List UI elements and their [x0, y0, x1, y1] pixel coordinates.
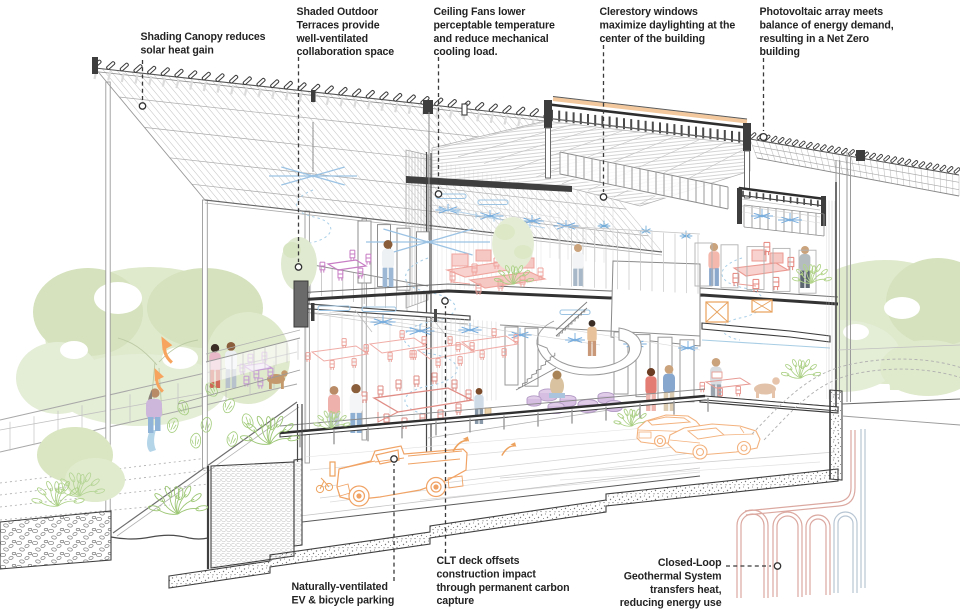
svg-text:building: building — [760, 46, 800, 58]
svg-text:Shading Canopy reduces: Shading Canopy reduces — [141, 31, 266, 43]
svg-text:EV & bicycle parking: EV & bicycle parking — [292, 595, 395, 607]
svg-text:Photovoltaic array meets: Photovoltaic array meets — [760, 6, 884, 18]
svg-text:well-ventilated: well-ventilated — [296, 33, 369, 45]
svg-text:reducing energy use: reducing energy use — [620, 597, 722, 609]
svg-text:Geothermal System: Geothermal System — [624, 571, 722, 583]
svg-text:center of the building: center of the building — [600, 33, 706, 45]
svg-text:Naturally-ventilated: Naturally-ventilated — [292, 581, 388, 593]
svg-text:solar heat gain: solar heat gain — [141, 45, 214, 57]
svg-text:Terraces provide: Terraces provide — [297, 20, 380, 32]
svg-text:Ceiling Fans lower: Ceiling Fans lower — [434, 6, 526, 18]
svg-text:balance of energy demand,: balance of energy demand, — [760, 20, 894, 32]
svg-text:perceptable temperature: perceptable temperature — [434, 20, 556, 32]
svg-text:capture: capture — [437, 595, 475, 607]
svg-text:Shaded Outdoor: Shaded Outdoor — [297, 6, 379, 18]
svg-text:through permanent carbon: through permanent carbon — [437, 582, 570, 594]
svg-text:Clerestory windows: Clerestory windows — [600, 6, 698, 18]
svg-text:transfers heat,: transfers heat, — [650, 584, 722, 596]
svg-text:resulting in a Net Zero: resulting in a Net Zero — [760, 33, 870, 45]
svg-text:CLT deck offsets: CLT deck offsets — [437, 555, 520, 567]
svg-text:Closed-Loop: Closed-Loop — [658, 557, 722, 569]
svg-text:collaboration space: collaboration space — [297, 46, 395, 58]
svg-text:maximize daylighting at the: maximize daylighting at the — [600, 20, 736, 32]
svg-text:construction impact: construction impact — [437, 569, 537, 581]
svg-text:cooling load.: cooling load. — [434, 46, 498, 58]
svg-text:and reduce mechanical: and reduce mechanical — [434, 33, 549, 45]
